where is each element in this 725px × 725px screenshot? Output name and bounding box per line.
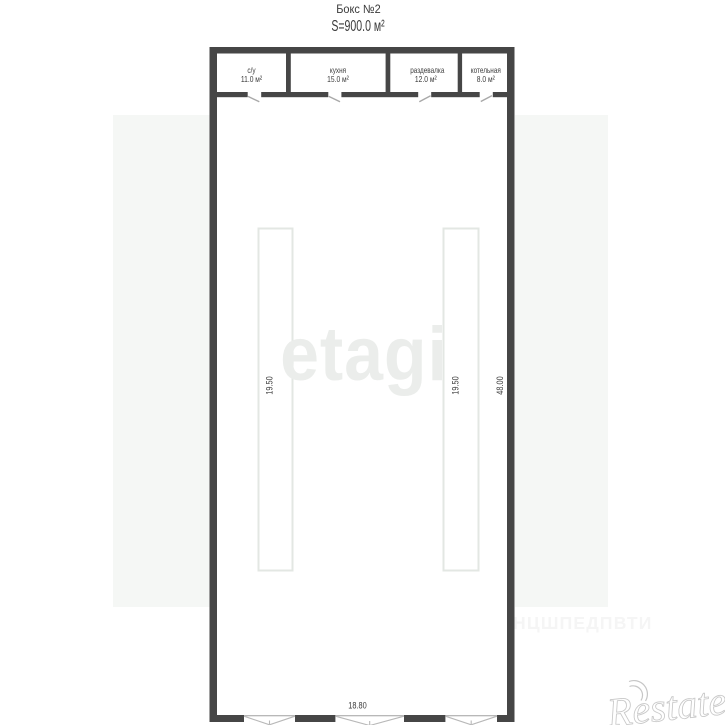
svg-text:19.50: 19.50 [451,376,461,395]
svg-text:19.50: 19.50 [265,376,275,395]
svg-text:15.0 м²: 15.0 м² [327,74,349,84]
svg-text:Бокс №2: Бокс №2 [336,4,380,16]
svg-text:18.80: 18.80 [348,701,367,711]
svg-text:48.00: 48.00 [495,376,505,395]
svg-text:12.0 м²: 12.0 м² [415,74,437,84]
svg-text:S=900.0 м²: S=900.0 м² [331,17,385,35]
svg-text:etagi: etagi [280,312,448,396]
svg-text:8.0 м²: 8.0 м² [477,74,495,84]
svg-text:11.0 м²: 11.0 м² [241,74,263,84]
svg-text:НЦШПЕДПВТИ: НЦШПЕДПВТИ [513,613,653,633]
